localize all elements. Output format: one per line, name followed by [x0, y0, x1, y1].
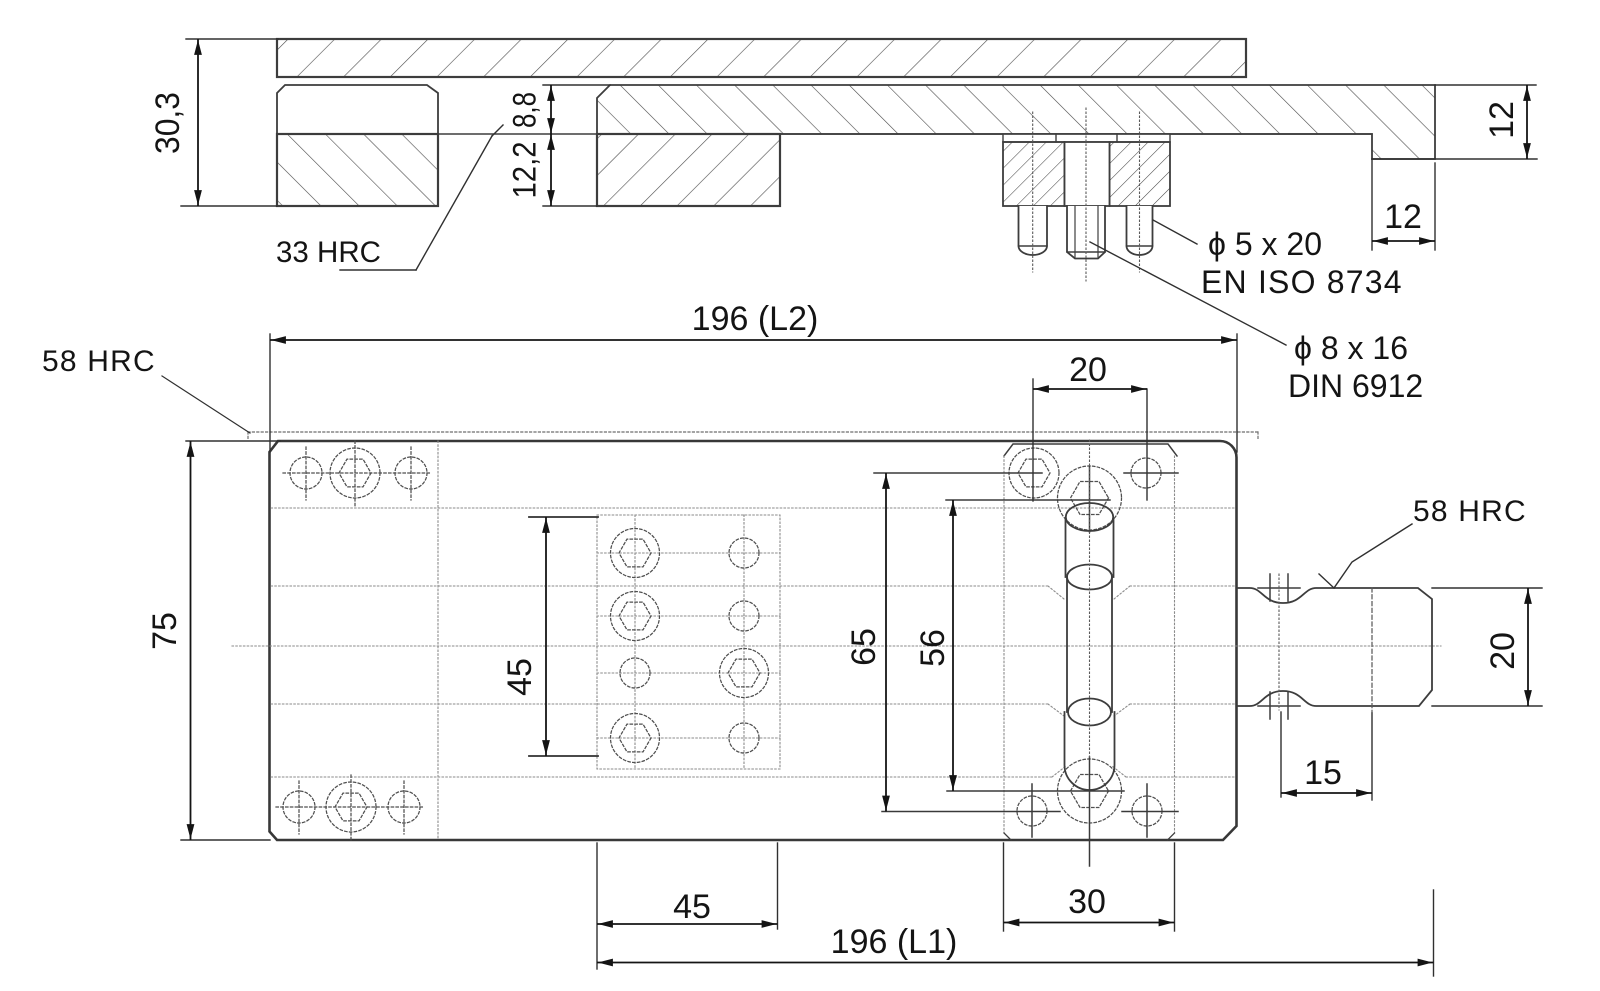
svg-text:ϕ 8 x 16: ϕ 8 x 16: [1294, 330, 1408, 366]
svg-text:30: 30: [1068, 883, 1106, 921]
svg-text:30,3: 30,3: [149, 92, 187, 154]
svg-text:12,2: 12,2: [506, 142, 542, 199]
svg-text:196 (L2): 196 (L2): [692, 300, 819, 338]
svg-text:8,8: 8,8: [506, 92, 542, 128]
svg-text:58 HRC: 58 HRC: [42, 345, 156, 378]
svg-text:33 HRC: 33 HRC: [276, 236, 381, 269]
svg-text:15: 15: [1304, 754, 1342, 792]
svg-text:DIN 6912: DIN 6912: [1288, 368, 1423, 404]
svg-text:12: 12: [1384, 198, 1422, 236]
svg-text:45: 45: [673, 888, 711, 926]
svg-text:196 (L1): 196 (L1): [831, 923, 958, 961]
svg-text:56: 56: [914, 629, 952, 667]
svg-text:20: 20: [1484, 632, 1522, 670]
svg-text:12: 12: [1483, 101, 1521, 139]
svg-text:ϕ 5 x 20: ϕ 5 x 20: [1208, 226, 1322, 262]
svg-text:65: 65: [845, 628, 883, 666]
svg-text:58 HRC: 58 HRC: [1413, 495, 1527, 528]
svg-text:20: 20: [1069, 351, 1107, 389]
svg-text:EN ISO 8734: EN ISO 8734: [1201, 264, 1403, 300]
svg-text:45: 45: [501, 658, 539, 696]
svg-text:75: 75: [146, 612, 184, 650]
